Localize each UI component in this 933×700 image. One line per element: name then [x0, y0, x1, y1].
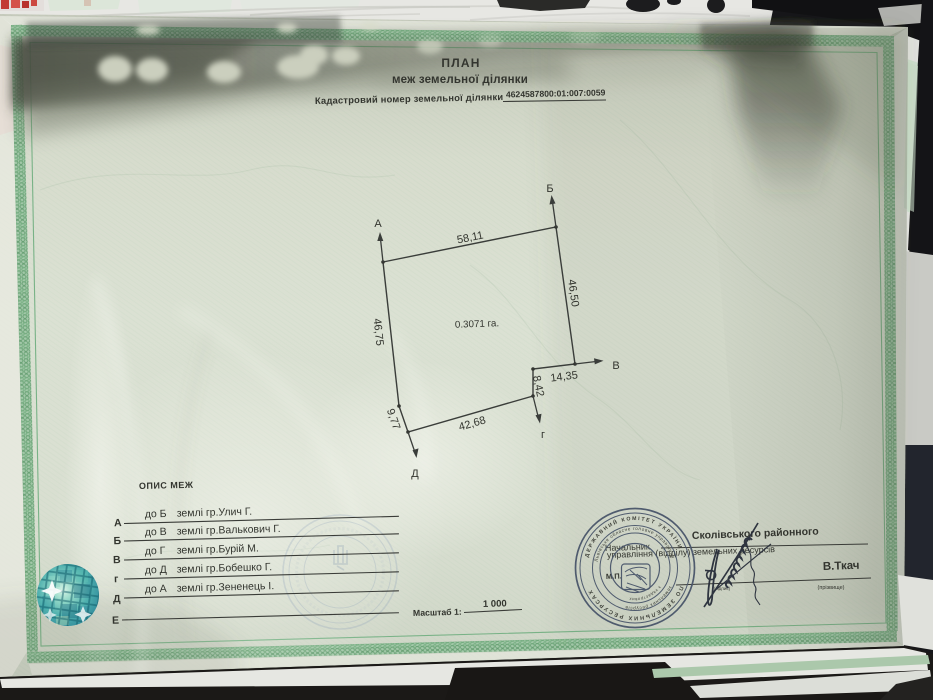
svg-text:Д: Д: [411, 468, 419, 480]
svg-text:землі гр.Улич Г.: землі гр.Улич Г.: [177, 506, 253, 520]
svg-text:Е: Е: [112, 615, 119, 627]
svg-text:В: В: [612, 360, 619, 372]
svg-text:В.Ткач: В.Ткач: [823, 560, 860, 573]
svg-text:г: г: [541, 429, 545, 441]
svg-text:Масштаб 1:: Масштаб 1:: [413, 607, 462, 618]
svg-text:до Г: до Г: [145, 545, 166, 558]
svg-text:до В: до В: [145, 526, 167, 539]
svg-text:4624587800:01:007:0059: 4624587800:01:007:0059: [506, 87, 606, 99]
svg-text:до Д: до Д: [145, 564, 167, 577]
svg-text:до А: до А: [145, 583, 167, 596]
svg-text:Б: Б: [546, 183, 553, 195]
svg-text:А: А: [374, 218, 382, 230]
svg-text:(прізвище): (прізвище): [818, 585, 845, 591]
svg-text:до Б: до Б: [145, 508, 167, 521]
svg-text:Б: Б: [113, 535, 121, 547]
svg-text:землі гр.Зененець І.: землі гр.Зененець І.: [177, 580, 275, 595]
svg-text:землі гр.Бурій М.: землі гр.Бурій М.: [177, 542, 259, 556]
svg-text:А: А: [114, 517, 122, 529]
svg-text:землі гр.Бобешко Г.: землі гр.Бобешко Г.: [177, 561, 273, 575]
svg-text:0.3071 га.: 0.3071 га.: [455, 318, 500, 331]
svg-text:В: В: [113, 554, 121, 566]
svg-text:Д: Д: [113, 593, 121, 605]
svg-text:меж земельної ділянки: меж земельної ділянки: [392, 74, 528, 86]
svg-text:ОПИС МЕЖ: ОПИС МЕЖ: [139, 480, 194, 491]
svg-text:ПЛАН: ПЛАН: [441, 56, 480, 70]
svg-text:1 000: 1 000: [483, 598, 507, 610]
